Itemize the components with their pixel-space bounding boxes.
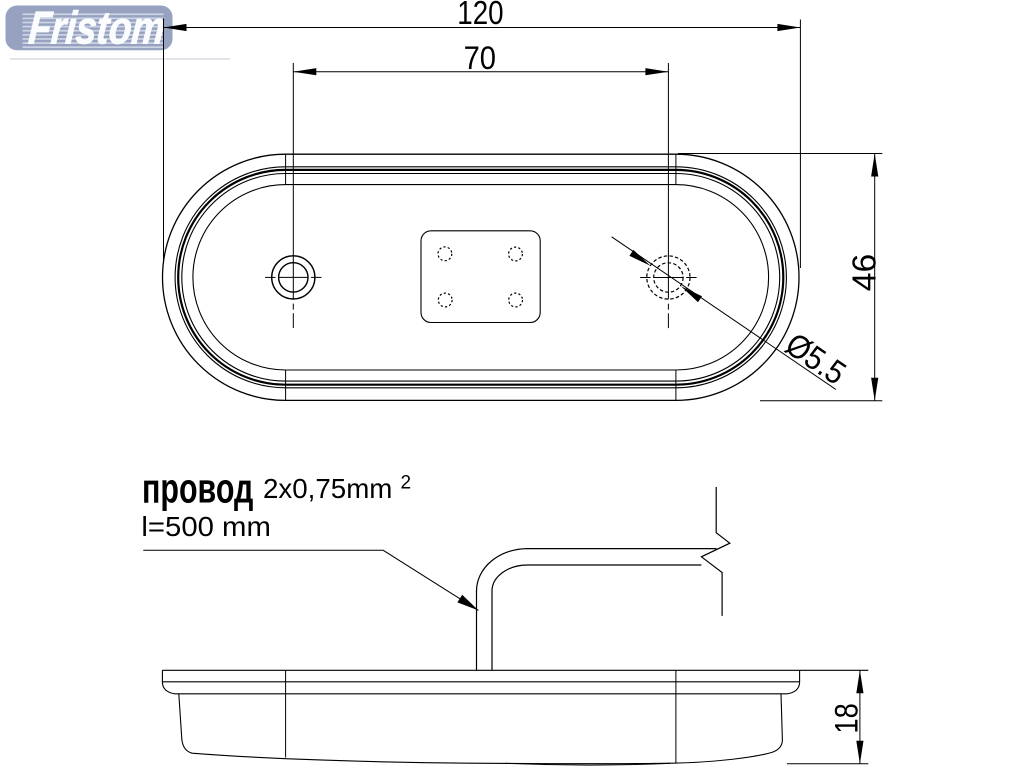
- svg-text:провод: провод: [142, 465, 253, 512]
- svg-text:Fristom: Fristom: [27, 2, 168, 54]
- svg-text:2x0,75mm: 2x0,75mm: [263, 473, 392, 504]
- svg-text:70: 70: [464, 40, 496, 76]
- svg-text:18: 18: [829, 703, 865, 733]
- svg-text:46: 46: [846, 254, 883, 292]
- svg-text:l=500 mm: l=500 mm: [141, 511, 271, 542]
- svg-text:120: 120: [457, 0, 503, 31]
- svg-text:2: 2: [401, 473, 412, 494]
